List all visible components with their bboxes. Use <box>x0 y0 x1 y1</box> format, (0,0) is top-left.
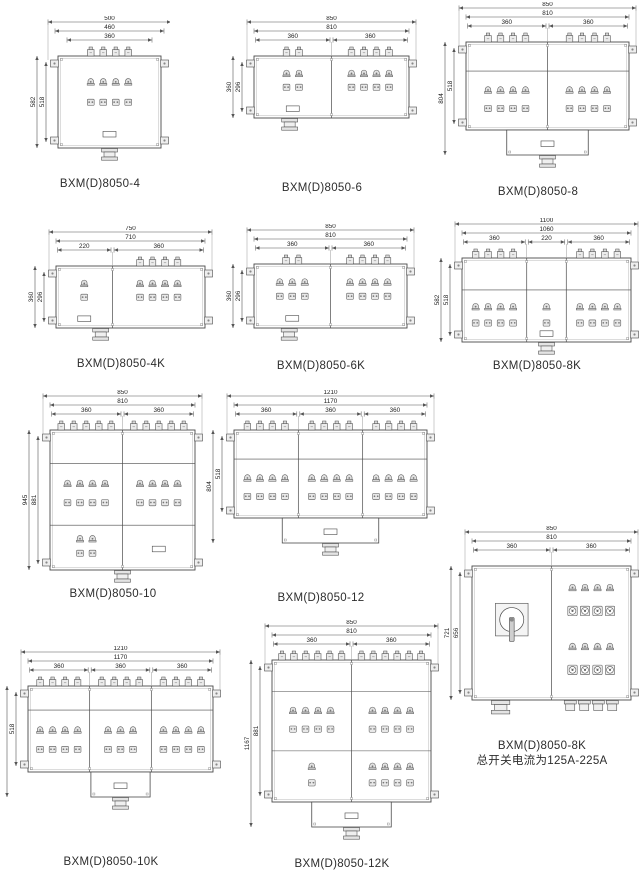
socket-icon <box>568 606 577 615</box>
dimension-horizontal: 360 <box>256 241 330 250</box>
mounting-lug <box>49 317 57 324</box>
mounting-lug <box>213 761 221 768</box>
lamp-icon <box>406 763 413 770</box>
lamp-icon <box>381 707 388 714</box>
dimension-label: 360 <box>177 663 188 670</box>
dimension-label: 721 <box>444 627 451 638</box>
button-icon <box>87 99 94 105</box>
mounting-lug <box>455 331 463 338</box>
button-icon <box>394 780 401 786</box>
screw <box>362 433 364 435</box>
diagram-caption: BXM(D)8050-10 <box>22 586 204 600</box>
button-icon <box>485 320 492 326</box>
lamp-icon <box>589 303 596 310</box>
diagram-caption: BXM(D)8050-8 <box>438 184 638 198</box>
lamp-icon <box>497 303 504 310</box>
dimension-label: 518 <box>39 96 46 107</box>
dimension-vertical: 582 <box>30 56 39 148</box>
breaker-icon <box>361 47 368 56</box>
dimension-vertical: 881 <box>31 436 40 564</box>
button-icon <box>282 493 289 499</box>
screw <box>191 566 193 568</box>
dimension-horizontal: 220 <box>58 243 112 252</box>
diagram-bxmd8050-6k: 850810360360360296 BXM(D)8050-6K <box>226 224 416 372</box>
lamp-icon <box>497 87 504 94</box>
button-icon <box>369 780 376 786</box>
dimension-vertical: 881 <box>253 666 262 796</box>
mounting-lug <box>265 664 273 671</box>
button-icon <box>372 293 379 299</box>
button-icon <box>37 746 44 752</box>
button-icon <box>510 320 517 326</box>
breaker-icon <box>180 421 187 430</box>
dimension-label: 518 <box>443 294 450 305</box>
breaker-icon <box>83 421 90 430</box>
mounting-lug <box>213 690 221 697</box>
dimension-label: 360 <box>306 637 317 644</box>
lamp-icon <box>49 727 56 734</box>
drawing-area: 850810360360804518 <box>438 2 638 184</box>
dimension-label: 804 <box>206 481 213 492</box>
diagram-drawing: 850810360360360296 <box>226 16 418 180</box>
button-icon <box>361 84 368 90</box>
mounting-lug <box>247 317 255 324</box>
lamp-icon <box>581 584 588 591</box>
button-icon <box>162 294 169 300</box>
button-icon <box>522 105 529 111</box>
breaker-icon <box>296 47 303 56</box>
breaker-icon <box>472 249 479 258</box>
dimension-label: 810 <box>117 398 128 405</box>
breaker-icon <box>279 651 286 660</box>
button-icon <box>472 320 479 326</box>
breaker-icon <box>384 255 391 264</box>
diagram-drawing: 850810360360360296 <box>226 224 416 358</box>
lamp-icon <box>161 480 168 487</box>
screw <box>122 433 124 435</box>
nameplate <box>541 141 554 147</box>
dimension-vertical: 518 <box>39 62 48 142</box>
lamp-icon <box>112 79 119 86</box>
lamp-icon <box>359 279 366 286</box>
button-icon <box>398 493 405 499</box>
dimension-label: 360 <box>501 19 512 26</box>
lamp-icon <box>606 584 613 591</box>
diagram-bxmd8050-8k-main-switch: 850810360360721656 BXM(D)8050-8K 总开关电流为1… <box>444 526 640 768</box>
screw <box>551 569 553 571</box>
breaker-icon <box>185 677 192 686</box>
screw <box>284 539 286 541</box>
enclosure-box <box>50 430 195 570</box>
dimension-horizontal: 810 <box>472 534 631 543</box>
diagram-bxmd8050-10k: 12101170360360360518 BXM(D)8050-10K <box>0 646 222 868</box>
button-icon <box>77 500 84 506</box>
mounting-lug <box>427 434 435 441</box>
screw <box>257 267 259 269</box>
dimension-label: 850 <box>117 390 128 396</box>
lamp-icon <box>314 707 321 714</box>
breaker-icon <box>162 257 169 266</box>
lamp-icon <box>174 480 181 487</box>
lamp-icon <box>603 87 610 94</box>
screw <box>314 823 316 825</box>
diagram-bxmd8050-8: 850810360360804518 BXM(D)8050-8 <box>438 2 638 198</box>
mounting-lug <box>629 46 637 53</box>
diagram-note: 总开关电流为125A-225A <box>444 752 640 768</box>
dimension-label: 518 <box>447 80 454 91</box>
mounting-lug <box>265 791 273 798</box>
diagram-drawing: 11001060360220360582518 <box>434 218 640 358</box>
dimension-horizontal: 360 <box>30 663 89 672</box>
breaker-icon <box>497 33 504 42</box>
dimension-label: 360 <box>154 243 165 250</box>
breaker-icon <box>198 677 205 686</box>
lamp-icon <box>308 763 315 770</box>
mounting-lug <box>455 262 463 269</box>
lamp-icon <box>601 303 608 310</box>
lamp-icon <box>185 727 192 734</box>
screw <box>257 59 259 61</box>
spec-sheet-page: 500460360582518 BXM(D)8050-4 85081036036… <box>0 0 642 887</box>
lamp-icon <box>594 584 601 591</box>
cable-gland-icon <box>491 701 509 714</box>
screw <box>526 338 528 340</box>
screw <box>237 514 239 516</box>
button-icon <box>347 293 354 299</box>
dimension-label: 360 <box>365 33 376 40</box>
dimension-label: 220 <box>79 243 90 250</box>
dimension-horizontal: 1170 <box>28 654 213 663</box>
dimension-label: 804 <box>438 93 445 104</box>
breaker-icon <box>338 651 345 660</box>
socket-icon <box>605 606 614 615</box>
button-icon <box>394 726 401 732</box>
dimension-vertical: 518 <box>447 48 456 124</box>
screw <box>150 689 152 691</box>
dimension-label: 1167 <box>244 736 251 750</box>
lamp-icon <box>117 727 124 734</box>
dimension-label: 360 <box>506 543 517 550</box>
breaker-icon <box>136 677 143 686</box>
dimension-label: 810 <box>542 10 553 17</box>
dimension-label: 360 <box>390 407 401 414</box>
mounting-lug <box>629 119 637 126</box>
screw <box>465 261 467 263</box>
breaker-icon <box>370 651 377 660</box>
screw <box>331 59 333 61</box>
button-icon <box>327 726 334 732</box>
nameplate <box>114 783 127 789</box>
breaker-icon <box>410 421 417 430</box>
button-icon <box>105 746 112 752</box>
button-icon <box>346 493 353 499</box>
screw <box>565 261 567 263</box>
button-icon <box>348 84 355 90</box>
dimension-label: 656 <box>453 627 460 638</box>
dimension-label: 360 <box>386 637 397 644</box>
button-icon <box>321 493 328 499</box>
button-icon <box>130 746 137 752</box>
breaker-icon <box>130 421 137 430</box>
button-icon <box>497 320 504 326</box>
mounting-lug <box>227 434 235 441</box>
button-icon <box>112 99 119 105</box>
dimension-label: 1170 <box>114 654 128 661</box>
lamp-icon <box>89 535 96 542</box>
drawing-area: 500460360582518 <box>30 16 170 176</box>
dimension-horizontal: 1060 <box>462 226 631 235</box>
dimension-label: 518 <box>9 723 16 734</box>
breaker-icon <box>333 421 340 430</box>
screw <box>257 114 259 116</box>
dimension-label: 881 <box>31 494 38 505</box>
breaker-icon <box>321 421 328 430</box>
screw <box>469 126 471 128</box>
lamp-icon <box>510 303 517 310</box>
screw <box>627 696 629 698</box>
screw <box>122 566 124 568</box>
breaker-icon <box>74 677 81 686</box>
dimension-label: 360 <box>28 291 35 302</box>
dimension-vertical: 582 <box>434 258 443 342</box>
screw <box>625 126 627 128</box>
button-icon <box>257 493 264 499</box>
breaker-icon <box>566 33 573 42</box>
button-icon <box>614 320 621 326</box>
drawing-area: 850810360360945881 <box>22 390 204 586</box>
breaker-icon <box>348 47 355 56</box>
diagram-drawing: 500460360582518 <box>30 16 170 176</box>
dimension-vertical: 360 <box>226 56 235 118</box>
screw <box>469 45 471 47</box>
diagram-drawing: 12101170360360360518 <box>0 646 222 854</box>
lamp-icon <box>606 643 613 650</box>
lamp-icon <box>125 79 132 86</box>
breaker-icon <box>98 677 105 686</box>
mounting-lug <box>21 690 29 697</box>
dimension-horizontal: 360 <box>464 235 526 244</box>
button-icon <box>373 493 380 499</box>
button-icon <box>591 105 598 111</box>
lamp-icon <box>74 727 81 734</box>
lamp-icon <box>581 643 588 650</box>
dimension-label: 582 <box>434 294 441 305</box>
dimension-label: 296 <box>235 81 242 92</box>
drawing-area: 850810360360721656 <box>444 526 640 738</box>
button-icon <box>543 320 550 326</box>
mounting-lug <box>631 689 639 696</box>
dimension-horizontal: 360 <box>114 243 203 252</box>
button-icon <box>269 493 276 499</box>
dimension-vertical: 1167 <box>244 660 253 827</box>
lamp-icon <box>281 475 288 482</box>
mounting-lug <box>407 317 415 324</box>
dimension-horizontal: 360 <box>333 33 408 42</box>
lamp-icon <box>385 475 392 482</box>
breaker-icon <box>394 651 401 660</box>
button-icon <box>382 780 389 786</box>
cable-gland-icon <box>592 701 604 711</box>
button-icon <box>160 746 167 752</box>
breaker-icon <box>100 47 107 56</box>
dimension-label: 850 <box>546 526 557 532</box>
dimension-label: 1100 <box>540 218 554 224</box>
breaker-icon <box>174 257 181 266</box>
button-icon <box>74 746 81 752</box>
breaker-icon <box>485 249 492 258</box>
dimension-label: 810 <box>326 24 337 31</box>
breaker-icon <box>111 677 118 686</box>
breaker-icon <box>314 651 321 660</box>
breaker-icon <box>604 33 611 42</box>
button-icon <box>149 294 156 300</box>
socket-icon <box>605 665 614 674</box>
screw <box>375 539 377 541</box>
screw <box>351 798 353 800</box>
lamp-icon <box>89 480 96 487</box>
dimension-horizontal: 360 <box>553 543 630 552</box>
button-icon <box>289 293 296 299</box>
button-icon <box>125 99 132 105</box>
screw <box>351 663 353 665</box>
mounting-lug <box>43 559 51 566</box>
mounting-lug <box>631 570 639 577</box>
dimension-vertical: 804 <box>438 42 447 155</box>
enclosure-box <box>466 42 629 155</box>
breaker-icon <box>326 651 333 660</box>
mounting-lug <box>407 268 415 275</box>
breaker-icon <box>579 33 586 42</box>
breaker-icon <box>125 47 132 56</box>
lamp-icon <box>369 707 376 714</box>
breaker-icon <box>173 677 180 686</box>
diagram-caption: BXM(D)8050-12 <box>206 590 436 604</box>
screw <box>526 261 528 263</box>
button-icon <box>308 493 315 499</box>
dimension-label: 500 <box>104 16 115 22</box>
button-icon <box>283 84 290 90</box>
dimension-horizontal: 1170 <box>234 398 427 407</box>
screw <box>59 269 61 271</box>
drawing-area: 12101170360360360518 <box>0 646 222 854</box>
breaker-icon <box>602 249 609 258</box>
cable-gland-icon <box>606 701 618 711</box>
breaker-icon <box>577 249 584 258</box>
breaker-icon <box>485 33 492 42</box>
breaker-icon <box>112 47 119 56</box>
screw <box>465 338 467 340</box>
dimension-vertical: 721 <box>444 566 453 700</box>
button-icon <box>410 493 417 499</box>
mounting-lug <box>465 689 473 696</box>
nameplate <box>78 316 91 322</box>
button-icon <box>162 500 169 506</box>
button-icon <box>566 105 573 111</box>
dimension-label: 360 <box>104 33 115 40</box>
lamp-icon <box>244 475 251 482</box>
screw <box>191 433 193 435</box>
dimension-label: 810 <box>346 628 357 635</box>
dimension-label: 360 <box>115 663 126 670</box>
enclosure-box <box>272 660 431 827</box>
lamp-icon <box>371 279 378 286</box>
mounting-lug <box>21 761 29 768</box>
dimension-horizontal: 360 <box>52 407 122 416</box>
button-icon <box>382 726 389 732</box>
screw <box>330 324 332 326</box>
mounting-lug <box>51 137 59 144</box>
dimension-vertical: 945 <box>22 430 31 570</box>
diagram-caption: BXM(D)8050-8K <box>434 358 640 372</box>
enclosure-box <box>234 430 427 543</box>
button-icon <box>244 493 251 499</box>
screw <box>275 663 277 665</box>
dimension-horizontal: 360 <box>236 407 297 416</box>
button-icon <box>301 293 308 299</box>
breaker-icon <box>406 651 413 660</box>
breaker-icon <box>283 47 290 56</box>
dimension-horizontal: 810 <box>50 398 195 407</box>
lamp-icon <box>161 280 168 287</box>
dimension-label: 360 <box>261 407 272 414</box>
breaker-icon <box>123 677 130 686</box>
button-icon <box>64 500 71 506</box>
button-icon <box>174 500 181 506</box>
lamp-icon <box>543 303 550 310</box>
dimension-label: 360 <box>586 543 597 550</box>
diagram-drawing: 850810360360804518 <box>438 2 638 184</box>
button-icon <box>149 500 156 506</box>
lamp-icon <box>406 707 413 714</box>
button-icon <box>604 105 611 111</box>
button-icon <box>137 500 144 506</box>
breaker-icon <box>308 421 315 430</box>
cable-gland-icon <box>344 828 360 840</box>
dimension-label: 360 <box>54 663 65 670</box>
screw <box>427 798 429 800</box>
screw <box>387 823 389 825</box>
screw <box>297 433 299 435</box>
cable-gland-icon <box>539 343 555 355</box>
diagram-caption: BXM(D)8050-4K <box>28 356 214 370</box>
breaker-icon <box>373 421 380 430</box>
lamp-icon <box>569 643 576 650</box>
diagram-bxmd8050-8k: 11001060360220360582518 BXM(D)8050-8K <box>434 218 640 372</box>
dimension-label: 1170 <box>324 398 338 405</box>
dimension-vertical: 656 <box>453 572 462 694</box>
button-icon <box>315 726 322 732</box>
screw <box>475 569 477 571</box>
button-icon <box>601 320 608 326</box>
drawing-area: 850810360360360296 <box>226 224 416 358</box>
breaker-icon <box>346 421 353 430</box>
socket-icon <box>568 665 577 674</box>
dimension-label: 850 <box>346 620 357 626</box>
lamp-icon <box>302 707 309 714</box>
breaker-icon <box>87 47 94 56</box>
mounting-lug <box>427 507 435 514</box>
nameplate <box>540 331 553 337</box>
screw <box>201 269 203 271</box>
lamp-icon <box>384 279 391 286</box>
mounting-lug <box>205 270 213 277</box>
nameplate <box>345 813 358 819</box>
drawing-area: 11001060360220360582518 <box>434 218 640 358</box>
cable-gland-icon <box>564 701 576 711</box>
lamp-icon <box>136 480 143 487</box>
breaker-icon <box>522 33 529 42</box>
lamp-icon <box>327 707 334 714</box>
